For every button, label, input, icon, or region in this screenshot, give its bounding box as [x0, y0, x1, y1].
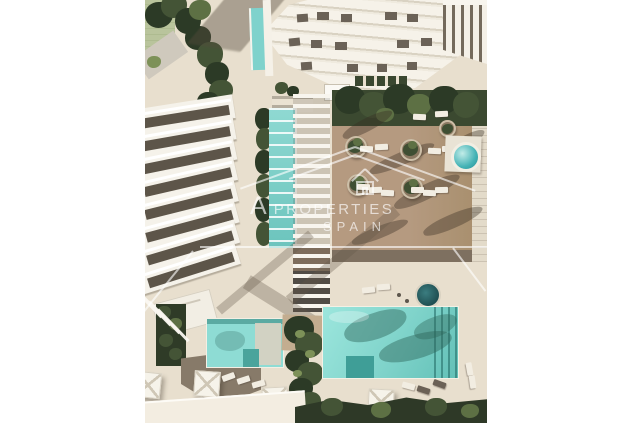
sun-lounger — [401, 381, 415, 390]
tower-balcony-window — [301, 62, 313, 71]
parasol — [145, 371, 162, 400]
sun-lounger — [435, 187, 448, 193]
side-table — [405, 299, 409, 303]
hot-tub — [415, 282, 441, 308]
tower-balcony-window — [421, 38, 432, 46]
screenshot-canvas: A PROPERTIES SPAIN — [0, 0, 630, 423]
pool-step — [243, 349, 259, 367]
sun-lounger — [416, 385, 430, 395]
sun-lounger — [381, 190, 394, 196]
sun-lounger — [413, 114, 426, 121]
sun-lounger — [377, 284, 390, 291]
site-plan-render: A PROPERTIES SPAIN — [145, 0, 487, 423]
water-shadow — [215, 331, 245, 351]
round-planter — [400, 139, 422, 161]
sun-lounger — [362, 286, 376, 293]
parasol — [193, 370, 221, 398]
sun-lounger — [375, 144, 388, 150]
tower-balcony-window — [407, 62, 417, 70]
tower-balcony-window — [377, 64, 387, 72]
tower-balcony-window — [317, 12, 329, 20]
tower-balcony-window — [289, 37, 301, 46]
sun-lounger — [435, 111, 448, 117]
tower-balcony-window — [297, 14, 309, 23]
tower-balcony-window — [335, 42, 347, 50]
main-pool — [322, 306, 459, 379]
sun-lounger — [428, 148, 441, 155]
sun-lounger — [469, 375, 477, 389]
sun-lounger — [360, 146, 373, 152]
tower-balcony-window — [385, 12, 397, 20]
tower-balcony-window — [347, 64, 358, 72]
tower-balcony-window — [341, 14, 352, 22]
tower-roof-edge — [443, 0, 487, 5]
round-planter — [439, 120, 456, 137]
sun-lounger — [432, 379, 446, 389]
tower-balcony-window — [311, 40, 322, 48]
road — [145, 390, 307, 423]
pool-step-notch — [346, 356, 374, 378]
sun-lounger — [465, 362, 473, 376]
side-table — [397, 293, 401, 297]
tower-balcony-window — [397, 40, 409, 48]
kids-pool — [206, 318, 284, 368]
tower-balcony-window — [407, 14, 418, 22]
jacuzzi-pool — [451, 142, 481, 172]
